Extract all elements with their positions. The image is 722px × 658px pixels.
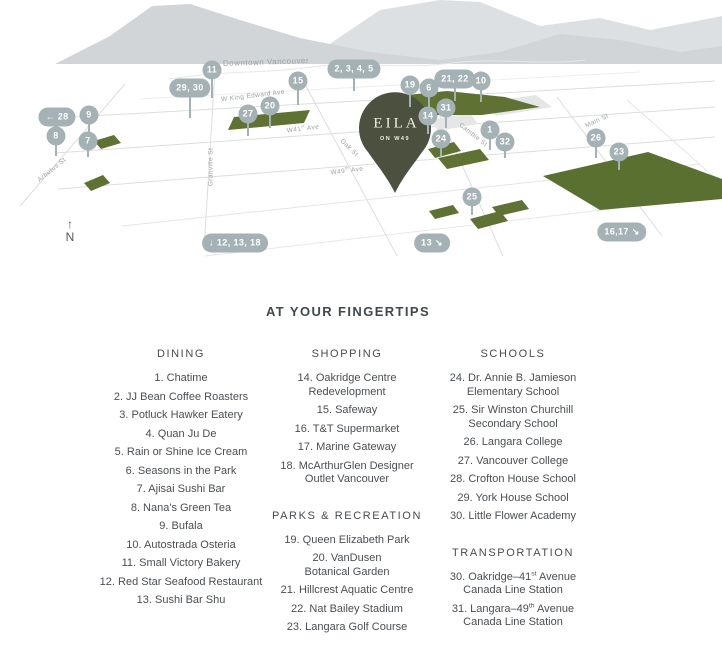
list-item: 4. Quan Ju De	[98, 428, 264, 442]
legend-section: SHOPPING14. Oakridge Centre Redevelopmen…	[264, 348, 430, 487]
list-item: 5. Rain or Shine Ice Cream	[98, 446, 264, 460]
list-item: 7. Ajisai Sushi Bar	[98, 483, 264, 497]
list-item: 16. T&T Supermarket	[264, 423, 430, 437]
section-title: SHOPPING	[264, 348, 430, 360]
list-item: 24. Dr. Annie B. Jamieson Elementary Sch…	[430, 372, 596, 399]
list-item: 6. Seasons in the Park	[98, 465, 264, 479]
list-item: 9. Bufala	[98, 520, 264, 534]
page-title: AT YOUR FINGERTIPS	[98, 304, 598, 319]
map-marker: 32	[496, 133, 515, 152]
legend-column: SHOPPING14. Oakridge Centre Redevelopmen…	[264, 348, 430, 658]
map-marker: ← 28	[38, 108, 75, 127]
marker-stem	[189, 96, 191, 118]
north-indicator: ↑ N	[66, 218, 75, 243]
map-marker: 19	[401, 76, 420, 95]
list-item: 27. Vancouver College	[430, 455, 596, 469]
section-items: 30. Oakridge–41st Avenue Canada Line Sta…	[430, 571, 596, 630]
list-item: 25. Sir Winston Churchill Secondary Scho…	[430, 404, 596, 431]
marker-stem	[427, 124, 429, 134]
map-marker: 10	[472, 72, 491, 91]
map-marker: 2, 3, 4, 5	[327, 60, 380, 79]
section-title: PARKS & RECREATION	[264, 510, 430, 522]
list-item: 30. Little Flower Academy	[430, 510, 596, 524]
map-marker: 27	[239, 105, 258, 124]
map-marker: 7	[79, 132, 98, 151]
list-item: 13. Sushi Bar Shu	[98, 594, 264, 608]
map-marker: 13 ↘	[414, 234, 450, 253]
section-items: 1. Chatime2. JJ Bean Coffee Roasters3. P…	[98, 372, 264, 608]
marker-stem	[489, 138, 491, 150]
mountains	[55, 0, 722, 64]
section-items: 24. Dr. Annie B. Jamieson Elementary Sch…	[430, 372, 596, 524]
list-item: 28. Crofton House School	[430, 473, 596, 487]
eila-pin	[359, 92, 431, 193]
amenities-legend: AT YOUR FINGERTIPS DINING1. Chatime2. JJ…	[0, 304, 722, 658]
marker-stem	[595, 146, 597, 158]
marker-stem	[445, 116, 447, 128]
section-title: SCHOOLS	[430, 348, 596, 360]
section-title: DINING	[98, 348, 264, 360]
marker-stem	[269, 114, 271, 128]
legend-column: DINING1. Chatime2. JJ Bean Coffee Roaste…	[98, 348, 264, 658]
map-marker: 15	[289, 72, 308, 91]
list-item: 1. Chatime	[98, 372, 264, 386]
marker-stem	[211, 78, 213, 98]
map-marker: 26	[587, 129, 606, 148]
list-item: 8. Nana's Green Tea	[98, 502, 264, 516]
list-item: 2. JJ Bean Coffee Roasters	[98, 391, 264, 405]
legend-section: PARKS & RECREATION19. Queen Elizabeth Pa…	[264, 510, 430, 635]
list-item: 22. Nat Bailey Stadium	[264, 603, 430, 617]
map-marker: 24	[432, 130, 451, 149]
map-marker: 21, 22	[434, 70, 475, 89]
marker-stem	[353, 77, 355, 91]
list-item: 23. Langara Golf Course	[264, 621, 430, 635]
legend-section: TRANSPORTATION30. Oakridge–41st Avenue C…	[430, 547, 596, 630]
list-item: 26. Langara College	[430, 436, 596, 450]
list-item: 11. Small Victory Bakery	[98, 557, 264, 571]
street-label: Granville St	[208, 148, 215, 186]
marker-stem	[480, 89, 482, 102]
marker-stem	[55, 144, 57, 156]
list-item: 18. McArthurGlen Designer Outlet Vancouv…	[264, 460, 430, 487]
legend-section: SCHOOLS24. Dr. Annie B. Jamieson Element…	[430, 348, 596, 524]
list-item: 15. Safeway	[264, 404, 430, 418]
list-item: 31. Langara–49th Avenue Canada Line Stat…	[430, 603, 596, 630]
marker-stem	[471, 205, 473, 215]
list-item: 10. Autostrada Osteria	[98, 539, 264, 553]
legend-section: DINING1. Chatime2. JJ Bean Coffee Roaste…	[98, 348, 264, 608]
legend-column: SCHOOLS24. Dr. Annie B. Jamieson Element…	[430, 348, 596, 658]
list-item: 3. Potluck Hawker Eatery	[98, 409, 264, 423]
marker-stem	[618, 160, 620, 170]
list-item: 21. Hillcrest Aquatic Centre	[264, 584, 430, 598]
neighbourhood-map: EILA ON W49 ↑ N 1129, 30152, 3, 4, 51962…	[0, 0, 722, 272]
marker-stem	[454, 87, 456, 101]
list-item: 17. Marine Gateway	[264, 441, 430, 455]
marker-stem	[297, 89, 299, 105]
map-marker: 14	[419, 107, 438, 126]
marker-stem	[247, 122, 249, 136]
pin-logo: EILA	[370, 116, 419, 133]
list-item: 12. Red Star Seafood Restaurant	[98, 576, 264, 590]
section-items: 19. Queen Elizabeth Park20. VanDusen Bot…	[264, 534, 430, 635]
list-item: 20. VanDusen Botanical Garden	[264, 552, 430, 579]
map-marker: 16,17 ↘	[597, 223, 646, 242]
list-item: 14. Oakridge Centre Redevelopment	[264, 372, 430, 399]
section-items: 14. Oakridge Centre Redevelopment15. Saf…	[264, 372, 430, 487]
pin-subtitle: ON W49	[380, 136, 410, 142]
north-label: N	[66, 231, 75, 243]
section-title: TRANSPORTATION	[430, 547, 596, 559]
list-item: 19. Queen Elizabeth Park	[264, 534, 430, 548]
marker-stem	[409, 93, 411, 107]
map-marker: 29, 30	[169, 79, 210, 98]
map-marker: 31	[437, 99, 456, 118]
list-item: 30. Oakridge–41st Avenue Canada Line Sta…	[430, 571, 596, 598]
north-arrow-icon: ↑	[66, 218, 75, 230]
legend-columns: DINING1. Chatime2. JJ Bean Coffee Roaste…	[98, 348, 722, 658]
map-marker: 23	[610, 143, 629, 162]
map-marker: 8	[47, 127, 66, 146]
map-marker: 11	[203, 61, 222, 80]
list-item: 29. York House School	[430, 492, 596, 506]
map-marker: 20	[261, 97, 280, 116]
map-marker: 9	[80, 106, 99, 125]
map-marker: 25	[463, 188, 482, 207]
map-marker: ↓ 12, 13, 18	[202, 234, 268, 253]
